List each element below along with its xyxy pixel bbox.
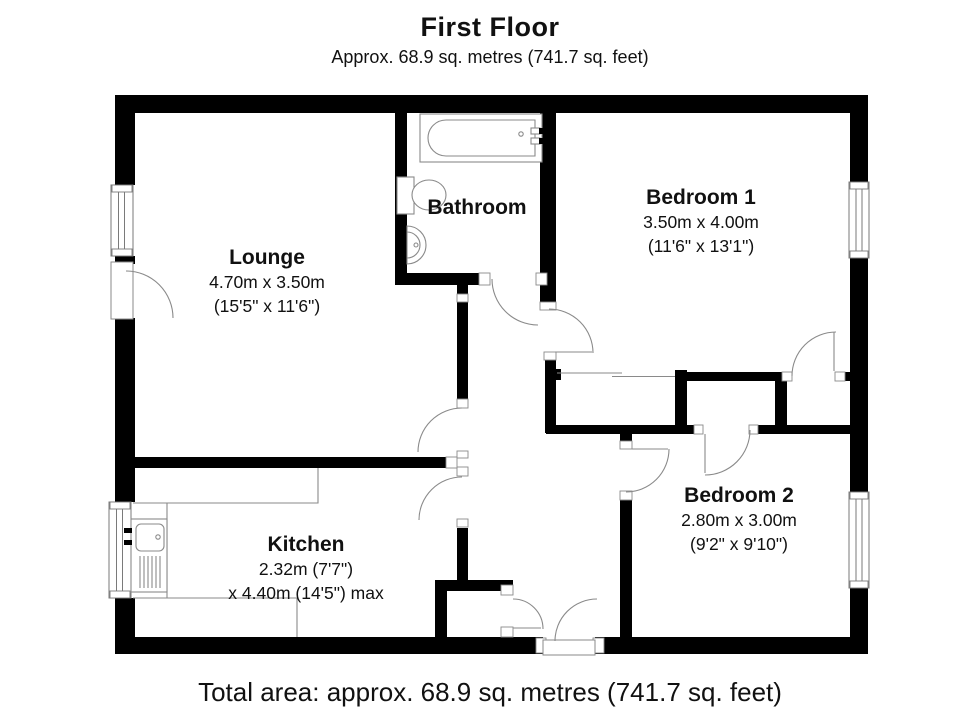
floorplan-drawing [0, 0, 980, 712]
kitchen-window-icon [109, 502, 131, 598]
bedroom1-name: Bedroom 1 [643, 185, 759, 210]
bathroom-name: Bathroom [427, 195, 526, 220]
bedroom1-window-icon [849, 182, 869, 258]
lounge-metric: 4.70m x 3.50m [209, 270, 325, 294]
lounge-name: Lounge [209, 245, 325, 270]
bedroom1-metric: 3.50m x 4.00m [643, 210, 759, 234]
kitchen-label: Kitchen 2.32m (7'7") x 4.40m (14'5") max [228, 532, 383, 605]
bedroom1-door-icon [549, 309, 593, 353]
bedroom1-imperial: (11'6" x 13'1") [643, 234, 759, 258]
lounge-imperial: (15'5" x 11'6") [209, 294, 325, 318]
floorplan-page: First Floor Approx. 68.9 sq. metres (741… [0, 0, 980, 712]
bedroom1-label: Bedroom 1 3.50m x 4.00m (11'6" x 13'1") [643, 185, 759, 258]
kitchen-imperial: x 4.40m (14'5") max [228, 581, 383, 605]
lounge-internal-door-icon [418, 408, 462, 452]
bedroom2-imperial: (9'2" x 9'10") [681, 532, 797, 556]
bedroom2-closet-door-icon [705, 430, 750, 475]
bathtub-icon [420, 114, 544, 162]
bedroom2-metric: 2.80m x 3.00m [681, 508, 797, 532]
entrance-door-icon [543, 599, 597, 655]
sliding-wardrobe-icon [557, 373, 675, 377]
kitchen-name: Kitchen [228, 532, 383, 557]
bedroom2-window-icon [849, 492, 869, 588]
bedroom2-label: Bedroom 2 2.80m x 3.00m (9'2" x 9'10") [681, 483, 797, 556]
bathroom-door-icon [492, 279, 538, 325]
lounge-label: Lounge 4.70m x 3.50m (15'5" x 11'6") [209, 245, 325, 318]
kitchen-door-icon [419, 477, 462, 520]
bedroom2-name: Bedroom 2 [681, 483, 797, 508]
total-area-text: Total area: approx. 68.9 sq. metres (741… [0, 677, 980, 708]
kitchen-metric: 2.32m (7'7") [228, 557, 383, 581]
lounge-external-door-icon [111, 262, 173, 319]
door-jambs [446, 273, 845, 653]
bedroom2-door-icon [626, 449, 669, 492]
lounge-window-icon [111, 185, 133, 256]
bathroom-label: Bathroom [427, 195, 526, 220]
hall-cupboard-door-icon [513, 599, 543, 629]
bedroom1-cupboard-door-icon [792, 332, 836, 376]
